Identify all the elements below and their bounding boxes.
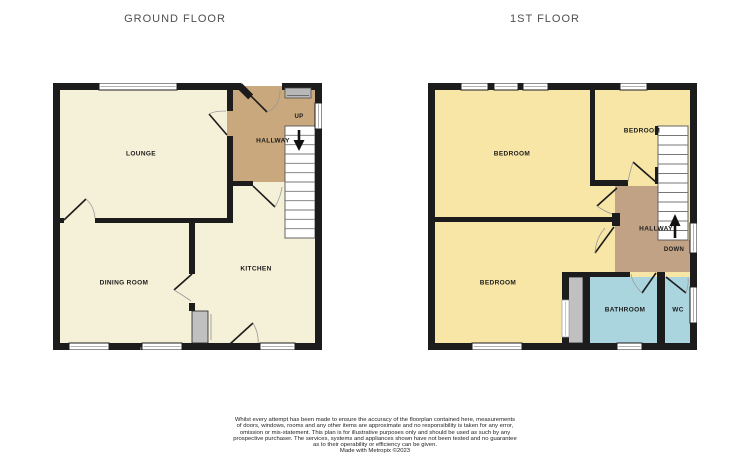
window-icon bbox=[690, 223, 697, 253]
bedroom-rear-small-label: BEDROOM bbox=[624, 128, 660, 135]
landing-hallway-label: HALLWAY bbox=[639, 226, 673, 233]
ground-room-fills bbox=[56, 86, 319, 347]
window-icon bbox=[690, 287, 697, 323]
window-icon bbox=[494, 83, 518, 90]
stairs-up-label: UP bbox=[295, 114, 304, 120]
window-icon bbox=[142, 343, 182, 350]
bathroom-label: BATHROOM bbox=[605, 307, 646, 314]
kitchen-appliance-icon bbox=[192, 311, 211, 343]
first-stairs bbox=[658, 126, 688, 240]
lounge-label: LOUNGE bbox=[126, 151, 156, 158]
stairs-down-label: DOWN bbox=[664, 247, 684, 253]
disclaimer-credit: Made with Metropix ©2023 bbox=[0, 448, 750, 454]
window-icon bbox=[69, 343, 109, 350]
window-icon bbox=[260, 343, 295, 350]
disclaimer: Whilst every attempt has been made to en… bbox=[0, 417, 750, 455]
window-icon bbox=[99, 83, 177, 90]
hallway-label: HALLWAY bbox=[256, 138, 290, 145]
window-icon bbox=[617, 343, 642, 350]
entrance-glazing-panel bbox=[285, 88, 311, 98]
first-floor-drawing bbox=[428, 83, 697, 350]
window-icon bbox=[523, 83, 548, 90]
wc-label: WC bbox=[672, 307, 684, 314]
window-icon bbox=[472, 343, 522, 350]
floorplan-canvas: GROUND FLOOR 1ST FLOOR bbox=[0, 0, 750, 460]
bedroom-front-label: BEDROOM bbox=[494, 151, 530, 158]
first-floor-title: 1ST FLOOR bbox=[510, 13, 580, 25]
window-icon bbox=[461, 83, 488, 90]
window-icon bbox=[620, 83, 647, 90]
ground-floor-drawing bbox=[53, 83, 322, 350]
cupboard-icon bbox=[568, 277, 583, 343]
ground-floor-title: GROUND FLOOR bbox=[124, 13, 226, 25]
bedroom-rear-label: BEDROOM bbox=[480, 280, 516, 287]
dining-room-label: DINING ROOM bbox=[100, 280, 149, 287]
first-floor-plan: BEDROOM BEDROOM BEDROOM HALLWAY DOWN BAT… bbox=[428, 83, 697, 350]
landing-area-understairs bbox=[658, 240, 690, 272]
kitchen-label: KITCHEN bbox=[240, 266, 271, 273]
cupboard-access-panel bbox=[562, 300, 569, 337]
window-icon bbox=[315, 103, 322, 129]
ground-floor-plan: LOUNGE HALLWAY UP KITCHEN DINING ROOM bbox=[53, 83, 322, 350]
